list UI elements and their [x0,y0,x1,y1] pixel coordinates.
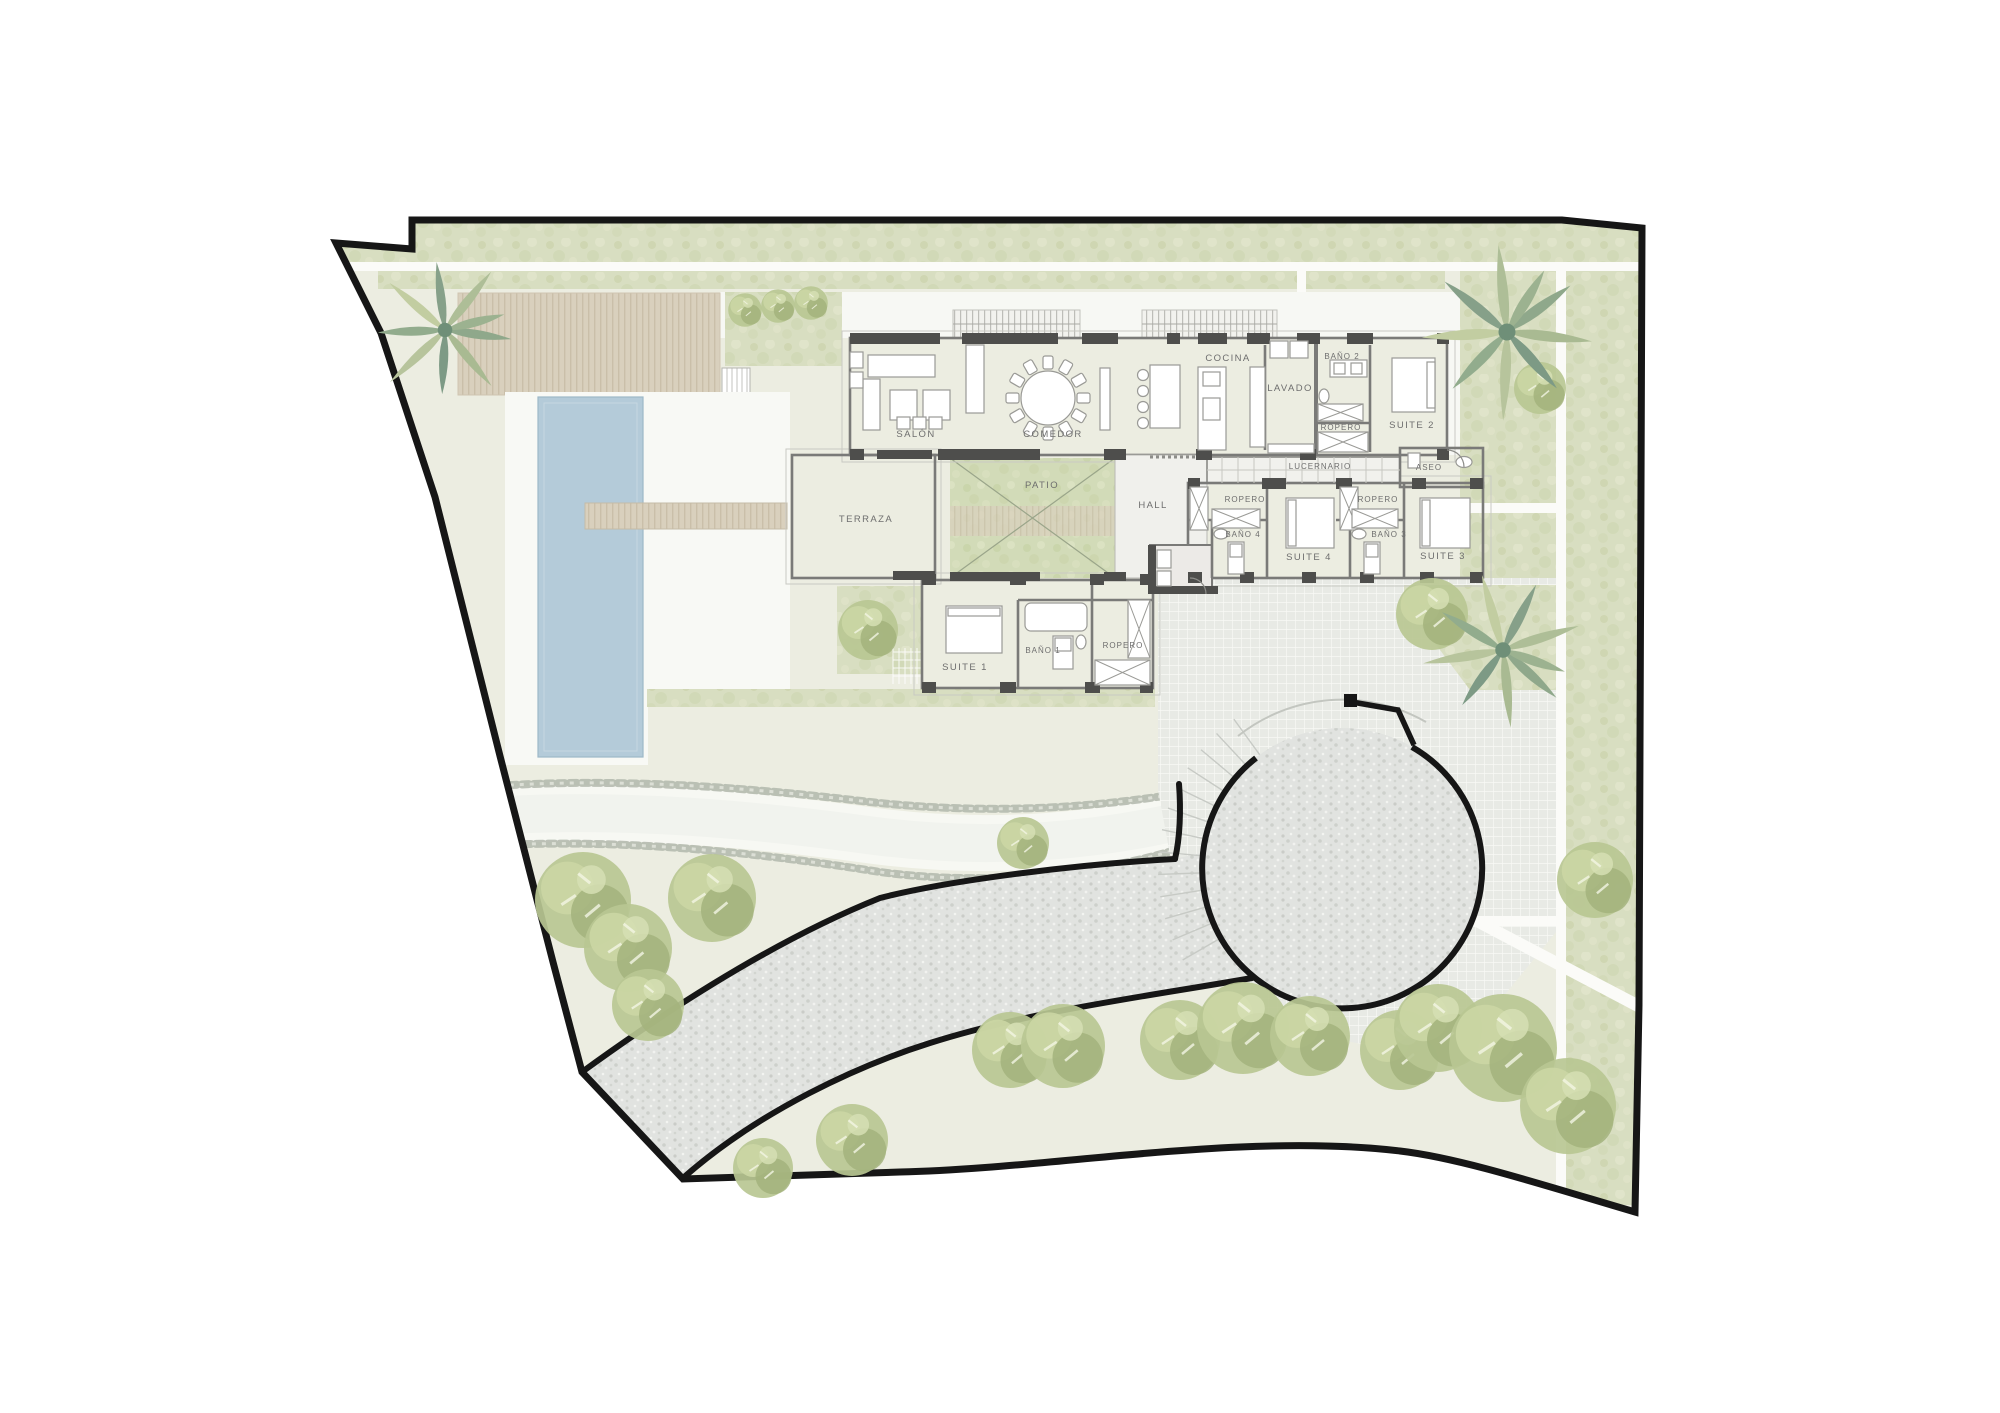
label-aseo: ASEO [1416,463,1442,472]
tree [838,600,898,660]
label-suite3: SUITE 3 [1420,551,1466,562]
label-suite2: SUITE 2 [1389,420,1435,431]
label-terraza: TERRAZA [839,514,893,525]
tree [728,293,762,327]
hedge-band-south-of-house [647,689,1155,707]
tree [997,817,1049,869]
tree [761,289,795,323]
label-bano3: BAÑO 3 [1371,530,1406,539]
tree [1021,1004,1105,1088]
label-salon: SALÓN [896,429,935,440]
label-suite4: SUITE 4 [1286,552,1332,563]
label-ropero-suite1: ROPERO [1103,641,1144,650]
garden-path-gap [1297,262,1306,292]
label-cocina: COCINA [1205,353,1250,364]
floor-plan-drawing: SALÓN COMEDOR COCINA LAVADO BAÑO 2 ROPER… [0,0,2000,1413]
site-plan-canvas: SALÓN COMEDOR COCINA LAVADO BAÑO 2 ROPER… [0,0,2000,1413]
deck-stair [722,368,750,396]
label-bano2: BAÑO 2 [1324,352,1359,361]
label-suite1: SUITE 1 [942,662,988,673]
tree [794,286,828,320]
tree [668,854,756,942]
label-ropero-suite3: ROPERO [1358,495,1399,504]
sideboard [1100,368,1110,430]
label-ropero-suite4: ROPERO [1225,495,1266,504]
tree [1270,996,1350,1076]
tree [816,1104,888,1176]
tree [1396,578,1468,650]
swimming-pool [538,397,643,757]
timber-deck [458,293,720,395]
court-gate-pier [1344,694,1357,707]
tree [1557,842,1633,918]
label-lucernario: LUCERNARIO [1289,462,1351,471]
suite2-bed [1392,358,1435,412]
label-comedor: COMEDOR [1023,429,1082,440]
tree [1520,1058,1616,1154]
label-bano1: BAÑO 1 [1025,646,1060,655]
label-lavado: LAVADO [1267,383,1313,394]
tree [612,969,684,1041]
patio-garden [950,458,1115,578]
label-ropero-suite2: ROPERO [1321,423,1362,432]
label-hall: HALL [1138,500,1167,511]
label-bano4: BAÑO 4 [1225,530,1260,539]
garden-path-north [330,262,1648,271]
label-patio: PATIO [1025,480,1059,491]
tree [733,1138,793,1198]
walkway-east-of-suite2 [1447,292,1460,455]
hedge-band-north-2 [378,271,1297,289]
deck-bridge [585,503,787,529]
garden-path-east-1 [1460,503,1556,513]
hedge-band-north-3 [1306,271,1445,289]
